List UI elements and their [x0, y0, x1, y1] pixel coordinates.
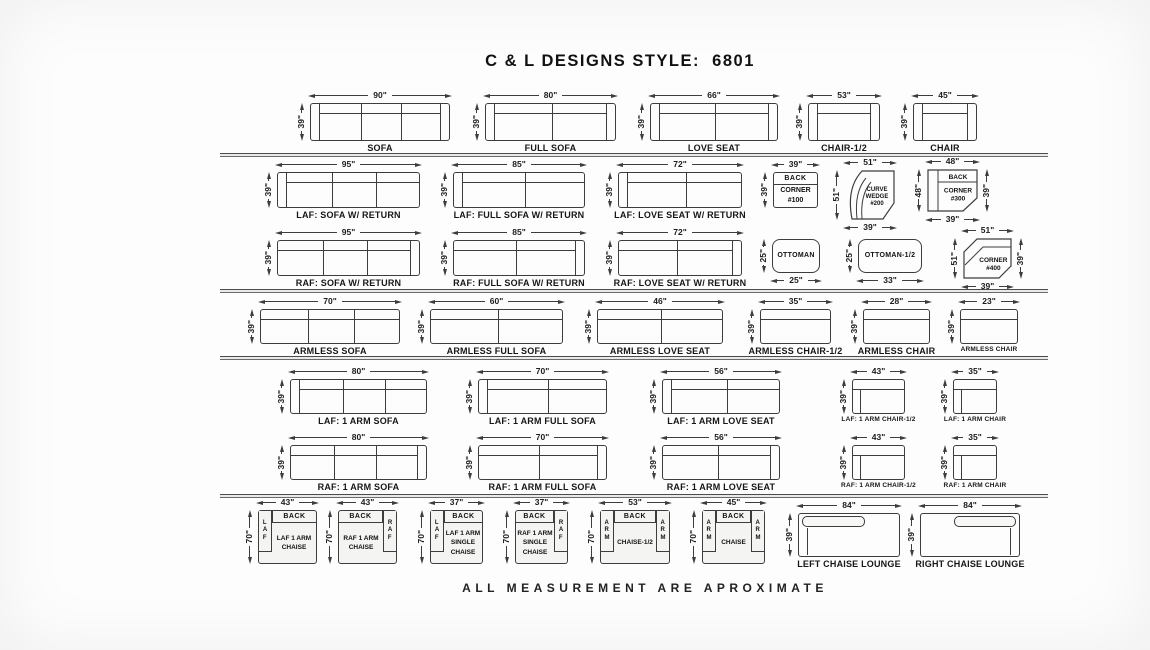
piece-label: RAF: 1 ARM LOVE SEAT: [632, 482, 810, 492]
diagram-part: [275, 231, 282, 235]
dimension-vertical: 39": [417, 309, 426, 344]
dimension-vertical: 39": [472, 103, 481, 141]
diagram-part: [982, 505, 1015, 506]
diagram-part: [910, 550, 914, 557]
diagram-part: [808, 280, 815, 281]
diagram-part: [428, 300, 435, 304]
piece-label: RAF: 1 ARM CHAIR: [923, 482, 1027, 489]
raf-1-arm-love-seat: [662, 445, 780, 480]
dimension-horizontal: 53": [598, 498, 672, 507]
dimension-value: 70": [318, 297, 342, 306]
diagram-part: [882, 162, 890, 163]
dimension-horizontal: 46": [595, 297, 725, 306]
laf-sofa-w-return: [277, 172, 420, 208]
ottoman: OTTOMAN: [772, 239, 820, 273]
back-cushion-line: [320, 104, 440, 114]
diagram-part: [590, 510, 594, 517]
diagram-part: [562, 95, 611, 96]
diagram-part: [718, 300, 725, 304]
diagram-part: [745, 502, 760, 503]
dimension-vertical: 25": [759, 239, 768, 273]
dimension-vertical: 70": [417, 510, 426, 564]
dimension-value: 45": [933, 91, 957, 100]
dimension-horizontal: 56": [660, 367, 782, 376]
dimension-value: 85": [507, 228, 531, 237]
seat-divider: [343, 380, 344, 413]
diagram-part: [608, 240, 612, 247]
dimension-vertical: 70": [689, 510, 698, 564]
footer-note: ALL MEASUREMENT ARE APROXIMATE: [462, 581, 828, 595]
diagram-part: [280, 407, 284, 414]
laf-1-arm-chaise: L A FBACKLAF 1 ARM CHAISE: [258, 510, 317, 564]
seat-divider: [367, 241, 368, 275]
diagram-part: [853, 337, 857, 344]
diagram-part: [343, 502, 356, 503]
diagram-part: [598, 501, 605, 505]
diagram-part: [813, 95, 832, 96]
diagram-part: [445, 94, 452, 98]
dimension-horizontal: 84": [796, 501, 902, 510]
side-arm-strip: A R M: [703, 511, 716, 552]
back-cushion-line: [864, 310, 929, 320]
diagram-part: [443, 269, 447, 276]
diagram-part: [758, 300, 765, 304]
diagram-part: [968, 230, 976, 231]
left-arm: [651, 104, 660, 140]
diagram-part: [863, 280, 878, 281]
dimension-value: 46": [648, 297, 672, 306]
section-divider: [220, 289, 1048, 293]
diagram-part: [483, 437, 531, 438]
dimension-value: 51": [976, 226, 1000, 235]
dimension-vertical: 39": [264, 240, 273, 276]
diagram-part: [773, 94, 780, 98]
diagram-part: [733, 437, 775, 438]
left-arm: [914, 104, 923, 140]
diagram-part: [775, 436, 782, 440]
diagram-part: [295, 437, 347, 438]
dimension-value: 39": [940, 454, 949, 472]
diagram-part: [770, 279, 777, 283]
diagram-part: [328, 510, 332, 517]
raf-love-seat-w-return: [618, 240, 742, 276]
diagram-part: [554, 371, 602, 372]
diagram-part: [483, 94, 490, 98]
dimension-value: 39": [982, 182, 991, 200]
diagram-part: [842, 407, 846, 414]
back-cushion-line: [291, 446, 417, 456]
dimension-vertical: 39": [465, 445, 474, 480]
back-cushion-line: [278, 241, 410, 251]
full-sofa: [485, 103, 616, 141]
dimension-horizontal: 80": [483, 91, 618, 100]
diagram-part: [275, 163, 282, 167]
corner-400-shape: CORNER#400: [963, 238, 1012, 279]
diagram-part: [875, 94, 882, 98]
arm-line: [853, 456, 861, 479]
diagram-part: [985, 205, 989, 212]
piece-label: RAF: 1 ARM CHAIR-1/2: [822, 482, 935, 489]
diagram-part: [857, 437, 867, 438]
dimension-value: 28": [885, 297, 909, 306]
diagram-part: [943, 379, 947, 386]
dimension-horizontal: 35": [758, 297, 833, 306]
right-chaise-lounge: [920, 513, 1020, 557]
dimension-vertical: 39": [649, 445, 658, 480]
dimension-vertical: 39": [440, 172, 449, 208]
dimension-value: 48": [914, 182, 923, 200]
arm-line: [807, 528, 808, 555]
side-arm-strip: L A F: [431, 511, 444, 552]
diagram-part: [951, 436, 958, 440]
diagram-part: [249, 517, 250, 528]
back-cushion-line: [488, 380, 606, 390]
diagram-part: [953, 272, 957, 279]
raf-full-sofa-w-return: [453, 240, 585, 276]
seat-divider: [376, 173, 377, 207]
laf-1-arm-full-sofa: [478, 379, 607, 414]
dimension-vertical: 39": [264, 172, 273, 208]
diagram-area: 90"39"SOFA80"39"FULL SOFA66"39"LOVE SEAT…: [0, 0, 1150, 650]
back-cushion-line: [663, 446, 770, 456]
side-arm-strip: R A F: [554, 511, 567, 552]
back-corner-300: BACKCORNER#300: [927, 169, 978, 212]
diagram-part: [798, 103, 802, 110]
dimension-value: 80": [347, 433, 371, 442]
dimension-value: 39": [976, 282, 1000, 291]
dimension-horizontal: 45": [700, 498, 767, 507]
dimension-value: 39": [440, 249, 449, 267]
diagram-part: [451, 231, 458, 235]
diagram-part: [961, 285, 968, 289]
diagram-part: [475, 134, 479, 141]
back-cushion-line: [672, 380, 779, 390]
left-arm: [619, 173, 628, 207]
dimension-vertical: 39": [785, 513, 794, 557]
diagram-part: [667, 437, 709, 438]
diagram-part: [505, 510, 509, 517]
armless-chair-half: [760, 309, 831, 344]
dimension-value: 53": [832, 91, 856, 100]
diagram-part: [972, 94, 979, 98]
diagram-part: [640, 103, 644, 110]
diagram-part: [422, 370, 429, 374]
dimension-vertical: 39": [605, 172, 614, 208]
diagram-part: [435, 301, 485, 302]
dimension-horizontal: 70": [258, 297, 402, 306]
diagram-part: [850, 162, 858, 163]
piece-label: RAF: LOVE SEAT W/ RETURN: [588, 278, 772, 288]
diagram-part: [315, 95, 368, 96]
dimension-vertical: 39": [584, 309, 593, 344]
dimension-value: 84": [958, 501, 982, 510]
diagram-part: [458, 164, 507, 165]
piece-label: LAF: 1 ARM FULL SOFA: [448, 416, 637, 426]
diagram-part: [520, 502, 530, 503]
diagram-part: [798, 134, 802, 141]
diagram-part: CURVE: [867, 187, 888, 193]
chair: [913, 103, 977, 141]
diagram-part: [902, 280, 917, 281]
back-corner-300-shape: BACKCORNER#300: [927, 169, 978, 212]
dimension-value: 70": [531, 433, 555, 442]
diagram-part: [917, 169, 921, 176]
diagram-part: [282, 164, 337, 165]
diagram-part: [468, 502, 478, 503]
dimension-horizontal: 35": [951, 367, 999, 376]
diagram-part: [590, 557, 594, 564]
diagram-part: [842, 473, 846, 480]
diagram-part: [918, 95, 933, 96]
back-cushion-line: [954, 380, 996, 390]
dimension-value: 23": [977, 297, 1001, 306]
back-strip: BACK: [516, 511, 554, 523]
back-cushion-line: [454, 241, 575, 251]
dimension-vertical: 39": [947, 309, 956, 344]
diagram-part: [595, 300, 602, 304]
dimension-value: 72": [668, 160, 692, 169]
dimension-horizontal: 39": [843, 223, 897, 232]
diagram-part: [853, 309, 857, 316]
diagram-part: [558, 300, 565, 304]
diagram-part: [750, 309, 754, 316]
laf-full-sofa-w-return: [453, 172, 585, 208]
spec-sheet: C & L DESIGNS STYLE: 6801 90"39"SOFA80"3…: [0, 0, 1150, 650]
right-arm: [768, 104, 777, 140]
diagram-part: [1001, 301, 1013, 302]
diagram-part: [911, 94, 918, 98]
diagram-part: [468, 407, 472, 414]
diagram-part: [992, 436, 999, 440]
seat-divider: [354, 310, 355, 343]
back-cushion-line: [495, 104, 606, 114]
back-strip: BACK: [716, 511, 751, 523]
diagram-part: [248, 510, 252, 517]
diagram-part: [1007, 229, 1014, 233]
dimension-vertical: 39": [637, 103, 646, 141]
dimension-vertical: 48": [914, 169, 923, 212]
dimension-vertical: 39": [760, 172, 769, 208]
laf-1-arm-single-chaise: L A FBACKLAF 1 ARM SINGLE CHAISE: [430, 510, 483, 564]
seat-divider: [727, 380, 728, 413]
diagram-part: [280, 379, 284, 386]
left-arm: [479, 380, 488, 413]
diagram-part: [506, 517, 507, 528]
seat-divider: [498, 310, 499, 343]
right-arm: [440, 104, 449, 140]
raf-sofa-w-return: [277, 240, 420, 276]
dimension-vertical: 39": [440, 240, 449, 276]
left-arm: [809, 104, 818, 140]
diagram-part: [652, 379, 656, 386]
dimension-horizontal: 35": [951, 433, 999, 442]
back-cushion: [954, 516, 1016, 527]
diagram-part: [842, 445, 846, 452]
dimension-value: 39": [760, 181, 769, 199]
diagram-part: [605, 502, 623, 503]
piece-label: CHAIR: [883, 143, 1007, 153]
arm-line: [954, 456, 962, 479]
diagram-part: WEDGE: [866, 194, 889, 200]
dimension-value: 60": [485, 297, 509, 306]
piece-text: CHAISE: [716, 523, 751, 563]
dimension-value: 43": [867, 433, 891, 442]
side-arm-strip: A R M: [656, 511, 669, 552]
dimension-horizontal: 95": [275, 228, 422, 237]
diagram-part: [900, 370, 907, 374]
diagram-part: [652, 407, 656, 414]
seat-divider: [661, 310, 662, 343]
diagram-part: [850, 370, 857, 374]
seat-divider: [516, 241, 517, 275]
seat-divider: [548, 380, 549, 413]
dimension-value: 51": [950, 250, 959, 268]
diagram-part: [623, 232, 668, 233]
right-arm: [870, 104, 879, 140]
diagram-part: [925, 218, 932, 222]
dimension-value: 39": [649, 388, 658, 406]
armless-full-sofa: [430, 309, 563, 344]
back-cushion: [802, 516, 865, 527]
dimension-value: 85": [507, 160, 531, 169]
diagram-part: [420, 557, 424, 564]
dimension-value: 39": [907, 526, 916, 544]
dimension-value: 70": [587, 528, 596, 546]
diagram-part: [580, 163, 587, 167]
piece-label: RIGHT CHAISE LOUNGE: [890, 559, 1050, 569]
back-cushion-line: [431, 310, 562, 320]
diagram-part: [280, 473, 284, 480]
back-cushion-line: [479, 446, 597, 456]
dimension-value: 39": [264, 249, 273, 267]
dimension-value: 56": [709, 433, 733, 442]
dimension-value: 25": [759, 247, 768, 265]
dimension-value: 35": [963, 433, 987, 442]
piece-text: CORNER #100: [774, 185, 817, 207]
diagram-part: [737, 231, 744, 235]
diagram-part: [992, 370, 999, 374]
diagram-part: [861, 505, 895, 506]
diagram-part: [1019, 238, 1023, 245]
diagram-part: [647, 502, 665, 503]
ottoman-half: OTTOMAN-1/2: [858, 239, 922, 273]
left-arm: [486, 104, 495, 140]
piece-label: LAF: 1 ARM CHAIR-1/2: [822, 416, 935, 423]
dimension-value: 37": [445, 498, 469, 507]
diagram-part: [917, 279, 924, 283]
raf-1-arm-chaise: R A FBACKRAF 1 ARM CHAISE: [338, 510, 397, 564]
diagram-part: [458, 232, 507, 233]
diagram-part: [483, 371, 531, 372]
seat-divider: [361, 104, 362, 140]
diagram-part: [961, 229, 968, 233]
diagram-part: [360, 232, 415, 233]
diagram-part: [476, 436, 483, 440]
curve-wedge-200-shape: CURVEWEDGE#200: [845, 170, 895, 220]
diagram-part: [587, 309, 591, 316]
section-divider: [220, 356, 1048, 360]
diagram-part: [553, 502, 563, 503]
dimension-vertical: 39": [839, 379, 848, 414]
diagram-part: [258, 300, 265, 304]
dimension-vertical: 39": [247, 309, 256, 344]
diagram-part: [267, 269, 271, 276]
piece-text: OTTOMAN: [773, 240, 819, 272]
dimension-value: 51": [858, 158, 882, 167]
diagram-part: [531, 232, 580, 233]
diagram-part: [762, 239, 766, 246]
dimension-value: 43": [867, 367, 891, 376]
dimension-value: 39": [850, 318, 859, 336]
diagram-part: [1015, 504, 1022, 508]
right-arm: [770, 446, 779, 479]
dimension-value: 39": [785, 526, 794, 544]
back-corner-100: BACKCORNER #100: [773, 172, 818, 208]
diagram-part: [360, 164, 415, 165]
diagram-part: [693, 517, 694, 528]
diagram-part: [788, 513, 792, 520]
dimension-vertical: 39": [747, 309, 756, 344]
dimension-value: 39": [584, 318, 593, 336]
dimension-vertical: 51": [832, 170, 841, 220]
love-seat: [650, 103, 778, 141]
diagram-part: [835, 213, 839, 220]
diagram-part: [861, 300, 868, 304]
dimension-horizontal: 84": [918, 501, 1022, 510]
dimension-vertical: 39": [940, 379, 949, 414]
diagram-part: [925, 505, 958, 506]
dimension-value: 43": [276, 498, 300, 507]
piece-text: LAF 1 ARM CHAISE: [272, 523, 316, 563]
diagram-part: [602, 436, 609, 440]
diagram-part: [925, 160, 932, 164]
left-arm: [311, 104, 320, 140]
diagram-part: [692, 510, 696, 517]
diagram-part: [900, 436, 907, 440]
dimension-vertical: 39": [277, 445, 286, 480]
laf-1-arm-sofa: [290, 379, 427, 414]
side-arm-strip: L A F: [259, 511, 272, 552]
diagram-part: [580, 231, 587, 235]
piece-label: ARMLESS CHAIR: [930, 346, 1048, 353]
diagram-part: [312, 501, 319, 505]
diagram-part: CORNER: [979, 257, 1007, 264]
diagram-part: [737, 163, 744, 167]
dimension-horizontal: 37": [513, 498, 570, 507]
diagram-part: [1013, 300, 1020, 304]
dimension-value: 72": [668, 228, 692, 237]
dimension-value: 70": [245, 528, 254, 546]
dimension-horizontal: 70": [476, 433, 609, 442]
piece-label: LAF: LOVE SEAT W/ RETURN: [588, 210, 772, 220]
arm-line: [1010, 528, 1011, 555]
back-cushion-line: [628, 173, 741, 183]
diagram-part: [280, 445, 284, 452]
right-arm: [417, 446, 426, 479]
diagram-part: [815, 279, 822, 283]
diagram-part: [813, 163, 820, 167]
piece-label: RAF: 1 ARM SOFA: [260, 482, 457, 492]
diagram-part: [968, 286, 976, 287]
diagram-part: [300, 103, 304, 110]
dimension-vertical: 39": [982, 169, 991, 212]
diagram-part: [836, 204, 837, 213]
seat-divider: [308, 310, 309, 343]
corner-400: CORNER#400: [963, 238, 1012, 279]
dimension-horizontal: 72": [616, 228, 744, 237]
diagram-part: [925, 300, 932, 304]
dimension-value: 39": [247, 318, 256, 336]
